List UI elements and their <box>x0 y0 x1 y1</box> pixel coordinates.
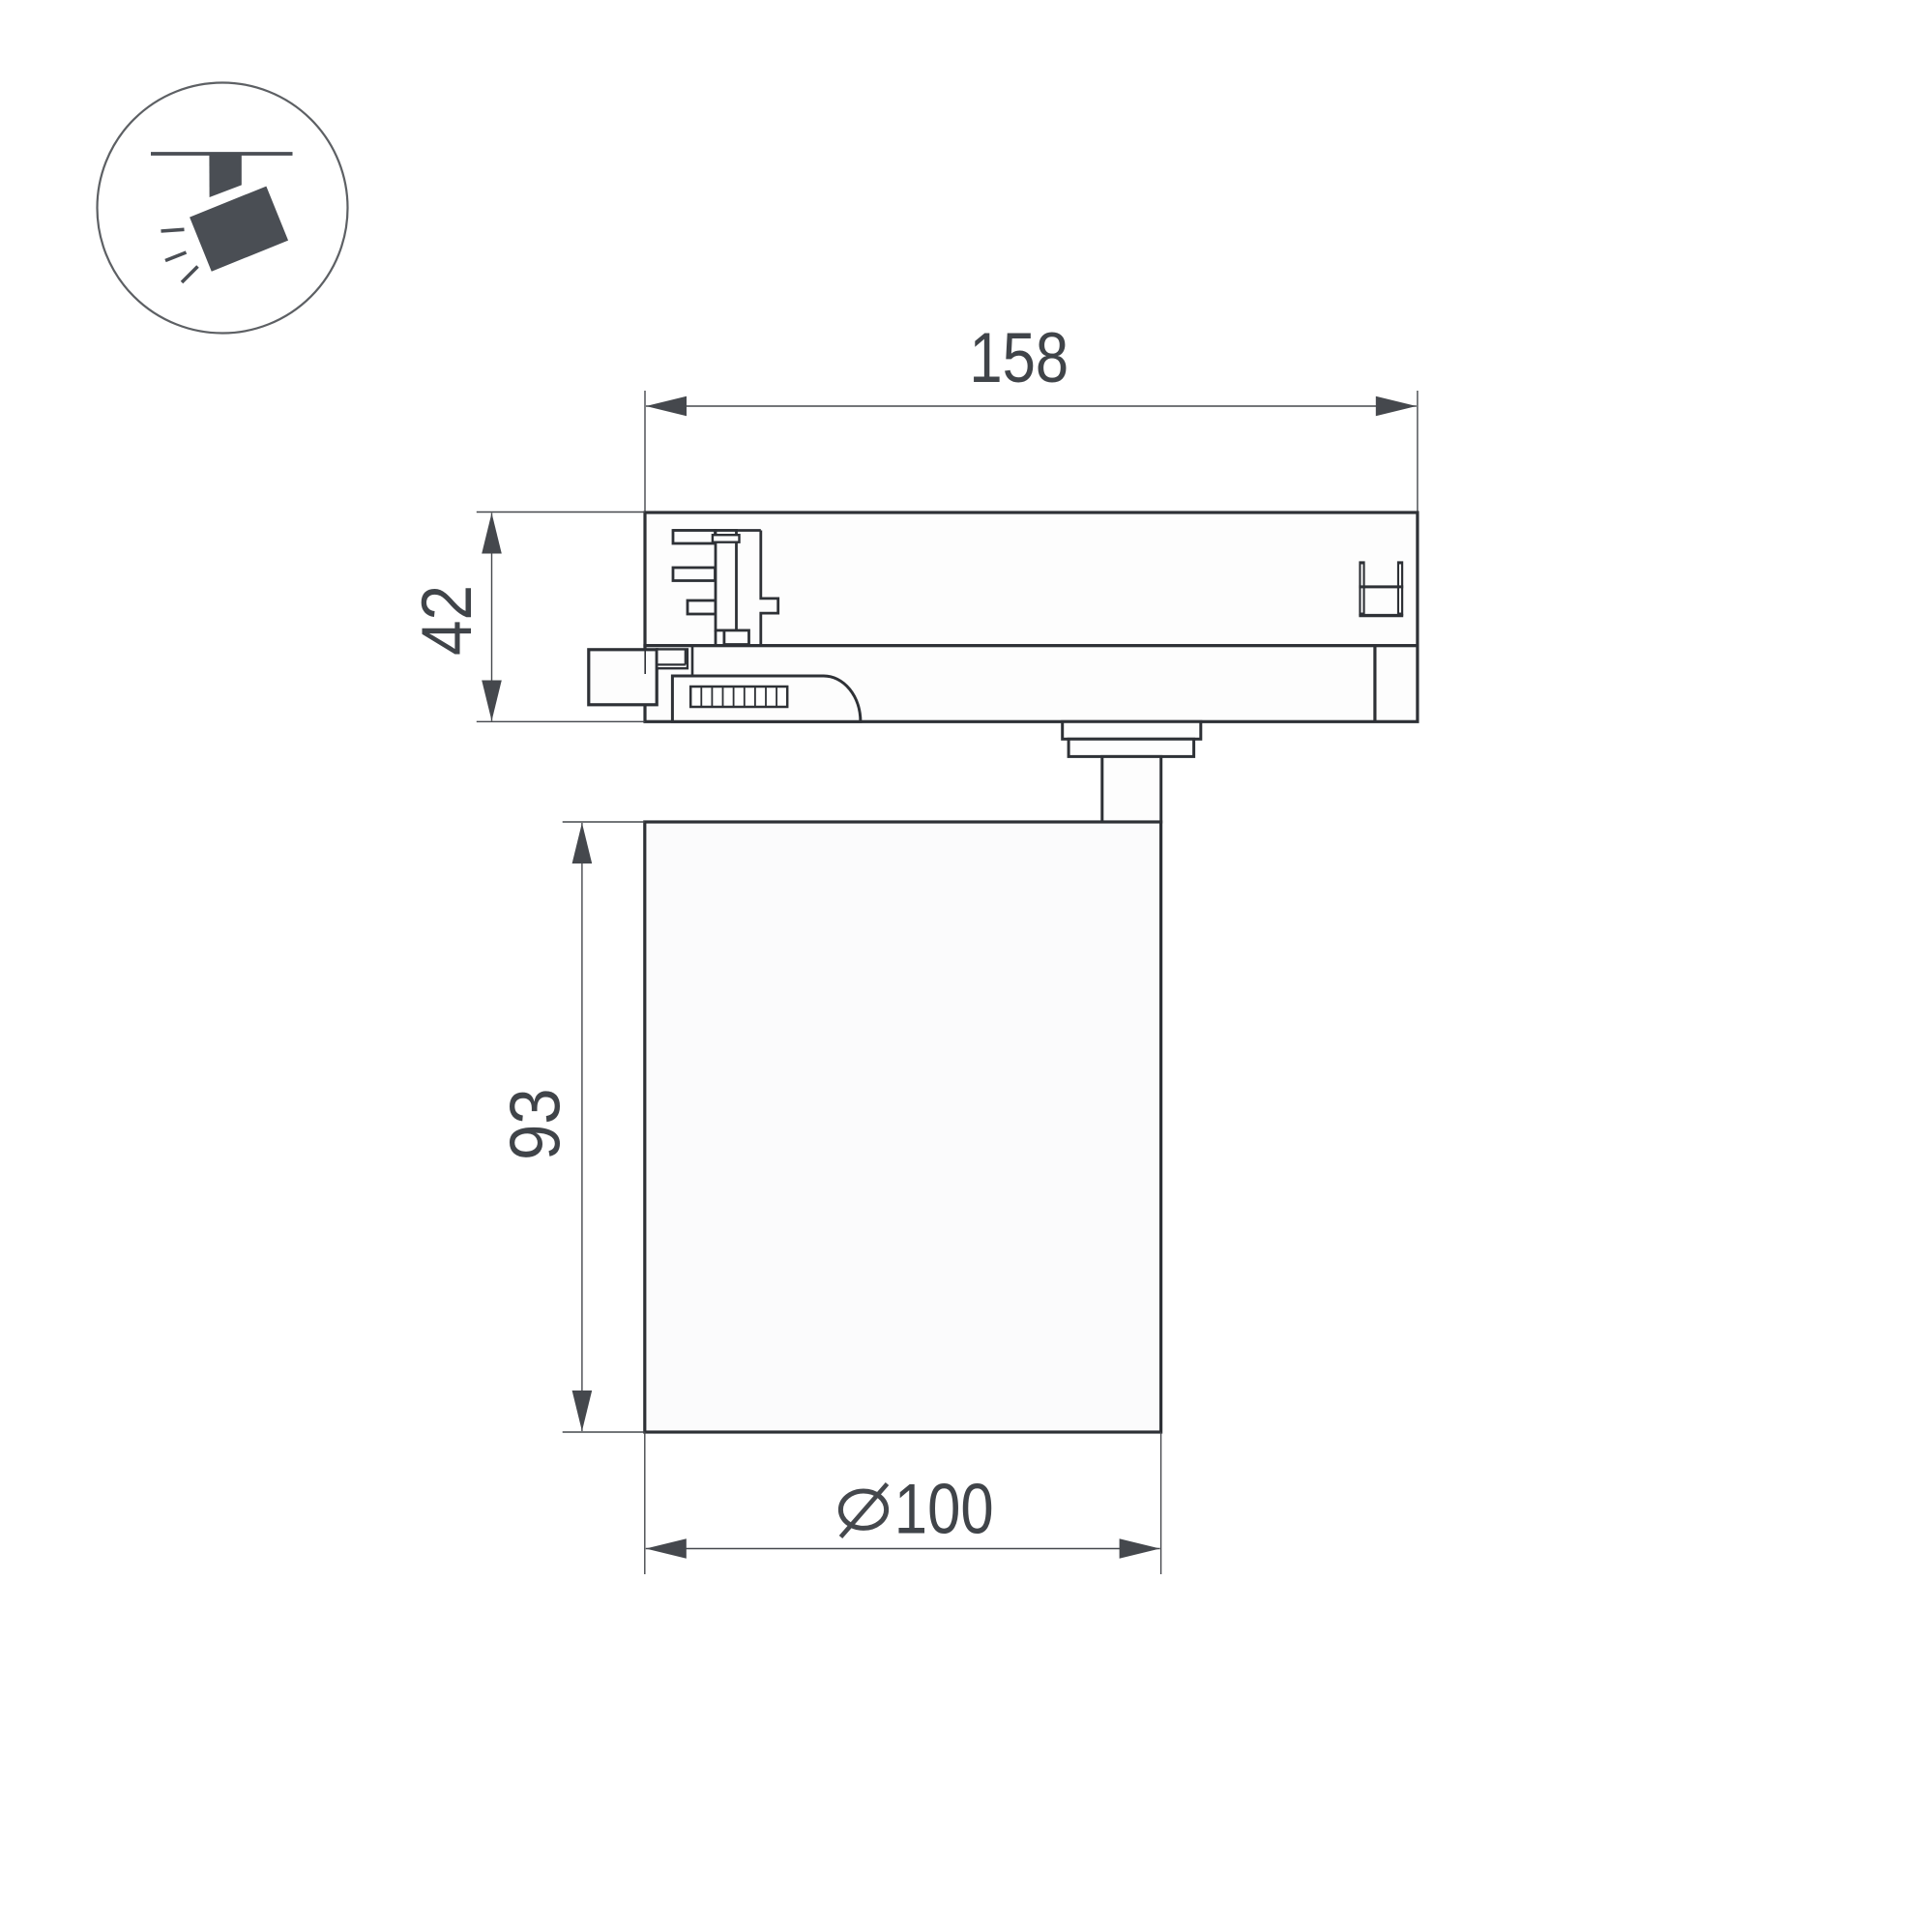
svg-text:93: 93 <box>496 1088 574 1160</box>
svg-text:42: 42 <box>407 585 486 656</box>
svg-text:158: 158 <box>969 319 1068 397</box>
svg-text:100: 100 <box>894 1471 994 1549</box>
